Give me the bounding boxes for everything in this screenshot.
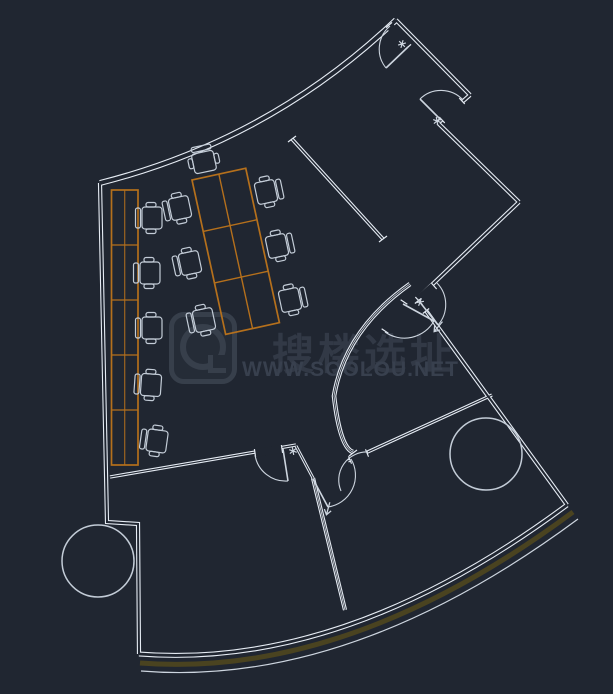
chair-seat [142, 317, 162, 339]
chair-armrest [144, 284, 154, 289]
office-chair [185, 303, 217, 339]
wall-core [292, 139, 383, 239]
wall-core [100, 20, 396, 183]
chair-armrest [146, 339, 156, 344]
door-arrow-marker [323, 501, 333, 515]
chair-seat [178, 250, 202, 276]
wall-core [296, 446, 313, 478]
door-opening [418, 286, 434, 300]
desk-island [192, 168, 279, 334]
chair-seat [140, 373, 161, 396]
chair-armrest [144, 396, 154, 401]
chair-seat [191, 150, 217, 174]
office-chair [139, 423, 170, 457]
door-swing-arc [420, 90, 463, 100]
facade-band [140, 512, 573, 664]
wall-core [438, 123, 519, 202]
desk-divider [214, 271, 268, 283]
chair-seat [140, 262, 160, 284]
chair-seat [254, 179, 278, 205]
wall [100, 20, 396, 183]
wall-core [100, 183, 139, 654]
chair-armrest [149, 451, 160, 457]
office-chair [136, 203, 163, 234]
wall-hairline [313, 478, 345, 610]
chair-armrest [270, 230, 281, 236]
door-leaf [420, 99, 441, 120]
chair-armrest [188, 158, 194, 169]
chair-armrest [259, 176, 270, 182]
chair-armrest [200, 330, 211, 336]
desk-divider [219, 174, 253, 328]
office-chair [264, 227, 296, 263]
chair-armrest [146, 313, 156, 318]
chair-seat [265, 233, 289, 259]
door-opening [255, 449, 282, 453]
chair-armrest [144, 258, 154, 263]
door-leaf [386, 47, 408, 68]
door-leaf [283, 449, 288, 481]
office-chair [136, 313, 163, 344]
office-chair [277, 281, 309, 317]
chair-armrest [214, 153, 220, 164]
chair-armrest [275, 256, 286, 262]
chair-armrest [181, 247, 192, 253]
wall-core [396, 20, 470, 95]
round-table [62, 525, 134, 597]
office-chair [171, 246, 203, 282]
chair-armrest [186, 273, 197, 279]
chair-armrest [153, 425, 164, 431]
desk-divider [203, 220, 257, 232]
door-swing-arc [255, 455, 288, 481]
floor-plan-drawing [0, 0, 613, 694]
chair-armrest [176, 218, 187, 224]
chair-armrest [146, 229, 156, 234]
chair-armrest [264, 202, 275, 208]
wall-core [348, 395, 492, 461]
chair-seat [146, 429, 169, 454]
chair-seat [278, 287, 302, 313]
wall-core [419, 301, 567, 505]
cad-floor-plan-viewport: 搜楼选址 WWW.SOOLOU.NET [0, 0, 613, 694]
chair-armrest [283, 284, 294, 290]
chair-armrest [146, 369, 156, 374]
desk-bank-left [112, 190, 139, 465]
chair-back [134, 374, 140, 394]
round-table [450, 418, 522, 490]
chair-armrest [288, 310, 299, 316]
office-chair [253, 173, 285, 209]
door-opening [385, 302, 404, 331]
door-swing-arc [437, 283, 446, 325]
chair-seat [142, 207, 162, 229]
chair-seat [192, 307, 216, 333]
chair-armrest [195, 304, 206, 310]
office-chair [161, 191, 193, 227]
chair-armrest [171, 192, 182, 198]
chair-seat [168, 195, 192, 221]
door-arrow-icon [323, 501, 333, 515]
chair-armrest [146, 203, 156, 208]
door-opening [442, 101, 462, 120]
